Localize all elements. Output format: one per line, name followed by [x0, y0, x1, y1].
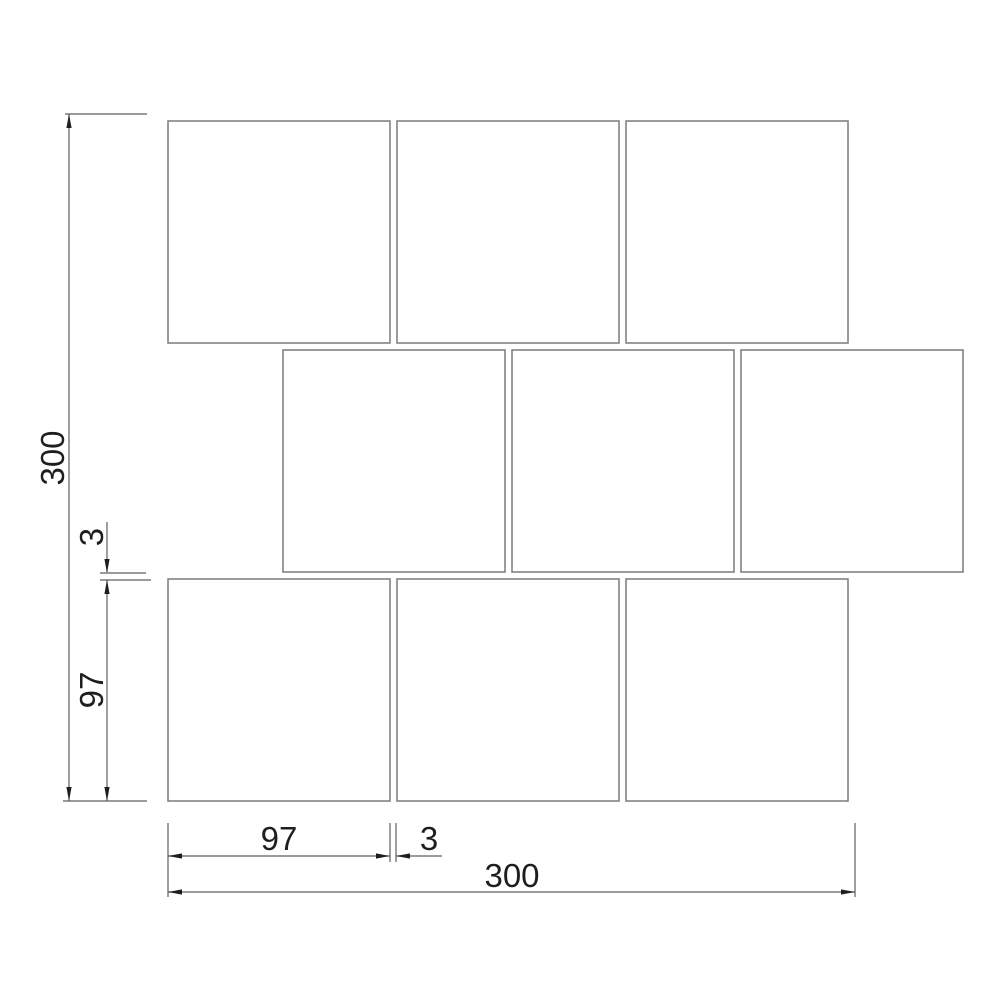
dim-label-bottom-300: 300 [484, 857, 539, 894]
tiles-group [168, 121, 963, 801]
arrowhead-bottom-97-right [376, 853, 390, 858]
arrowhead-bottom-300-right [841, 889, 855, 894]
tile-bottom-2 [397, 579, 619, 801]
arrowhead-left-97-top [104, 580, 109, 594]
dim-label-bottom-97: 97 [261, 820, 298, 857]
arrowhead-left-97-bottom [104, 787, 109, 801]
dim-label-left-97: 97 [73, 672, 110, 709]
dim-label-left-300: 300 [34, 430, 71, 485]
tile-bottom-3 [626, 579, 848, 801]
arrowhead-left-300-top [66, 114, 71, 128]
arrowhead-bottom-3 [396, 853, 410, 858]
dim-label-left-3: 3 [73, 528, 110, 546]
tile-top-3 [626, 121, 848, 343]
arrowhead-left-3 [104, 559, 109, 573]
tile-top-2 [397, 121, 619, 343]
tile-middle-1 [283, 350, 505, 572]
tile-layout-drawing: 300397973300 [0, 0, 1000, 1000]
tile-bottom-1 [168, 579, 390, 801]
tile-middle-3 [741, 350, 963, 572]
arrowhead-bottom-97-left [168, 853, 182, 858]
tile-middle-2 [512, 350, 734, 572]
technical-drawing-page: 300397973300 [0, 0, 1000, 1000]
tile-top-1 [168, 121, 390, 343]
arrowhead-left-300-bottom [66, 787, 71, 801]
dim-label-bottom-3: 3 [420, 820, 438, 857]
arrowhead-bottom-300-left [168, 889, 182, 894]
